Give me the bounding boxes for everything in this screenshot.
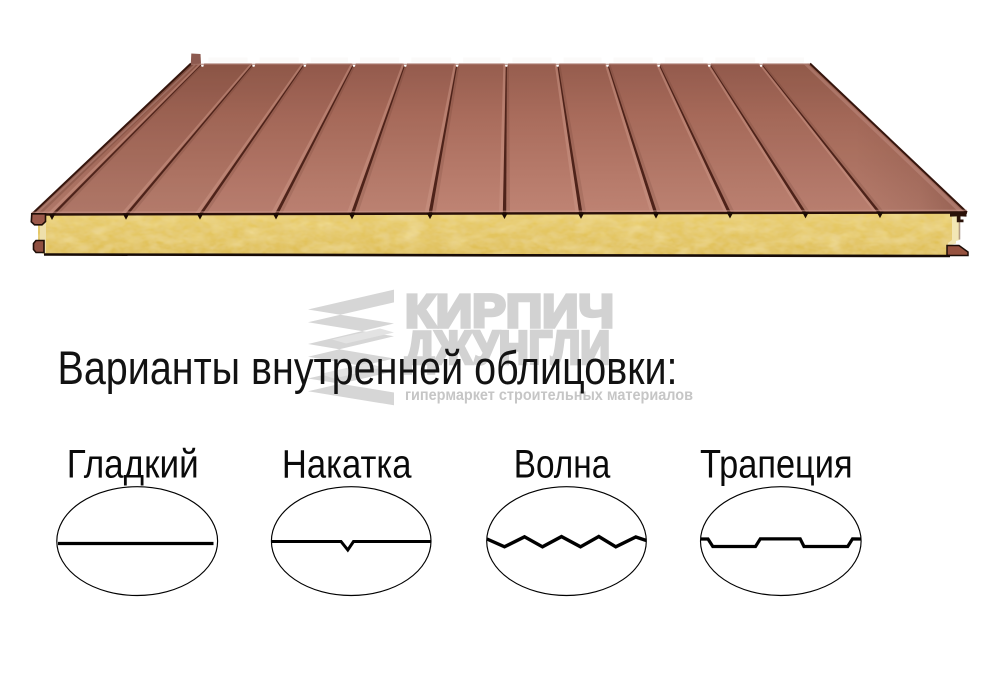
svg-text:Волна: Волна: [514, 443, 611, 487]
svg-text:Накатка: Накатка: [282, 443, 412, 487]
svg-text:Варианты внутренней облицовки:: Варианты внутренней облицовки:: [58, 342, 678, 395]
svg-text:Гладкий: Гладкий: [67, 443, 199, 487]
svg-text:Трапеция: Трапеция: [700, 443, 853, 487]
